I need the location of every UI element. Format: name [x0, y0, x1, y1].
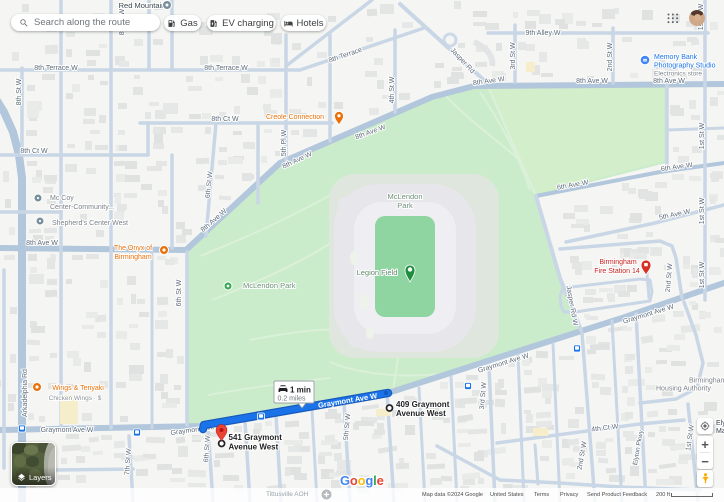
svg-text:Birmingham: Birmingham	[114, 254, 152, 261]
svg-text:Center-Community...: Center-Community...	[50, 204, 114, 211]
svg-text:Memory Bank: Memory Bank	[654, 54, 698, 61]
svg-text:0.2 miles: 0.2 miles	[278, 396, 307, 403]
svg-text:Fire Station 14: Fire Station 14	[594, 268, 640, 275]
svg-text:Creole Connection: Creole Connection	[266, 114, 324, 121]
svg-text:Mc Coy: Mc Coy	[50, 195, 74, 202]
svg-text:McLendon: McLendon	[387, 192, 422, 201]
svg-text:Mar: Mar	[716, 428, 724, 435]
svg-text:The Onyx of: The Onyx of	[114, 245, 152, 252]
svg-text:McLendon Park: McLendon Park	[243, 281, 296, 290]
svg-text:1 min: 1 min	[290, 386, 311, 395]
svg-text:Birmingham: Birmingham	[689, 378, 724, 385]
svg-text:541 Graymont: 541 Graymont	[229, 433, 283, 442]
svg-text:Legion Field: Legion Field	[357, 268, 398, 277]
svg-text:Wings & Teriyaki: Wings & Teriyaki	[52, 385, 104, 392]
svg-text:Chicken Wings · $: Chicken Wings · $	[49, 395, 102, 402]
svg-text:409 Graymont: 409 Graymont	[396, 400, 450, 409]
svg-text:Housing Authority: Housing Authority	[656, 386, 711, 393]
svg-text:Avenue West: Avenue West	[229, 443, 279, 452]
svg-text:Photography Studio: Photography Studio	[654, 63, 716, 70]
svg-text:Shepherd's Center West: Shepherd's Center West	[52, 220, 128, 227]
svg-text:Red Mountain: Red Mountain	[119, 1, 166, 10]
svg-text:Elyt: Elyt	[716, 420, 724, 427]
svg-text:Electronics store: Electronics store	[654, 71, 702, 78]
svg-text:Birmingham: Birmingham	[599, 259, 637, 266]
svg-text:Park: Park	[397, 201, 413, 210]
svg-text:Avenue West: Avenue West	[396, 409, 446, 418]
